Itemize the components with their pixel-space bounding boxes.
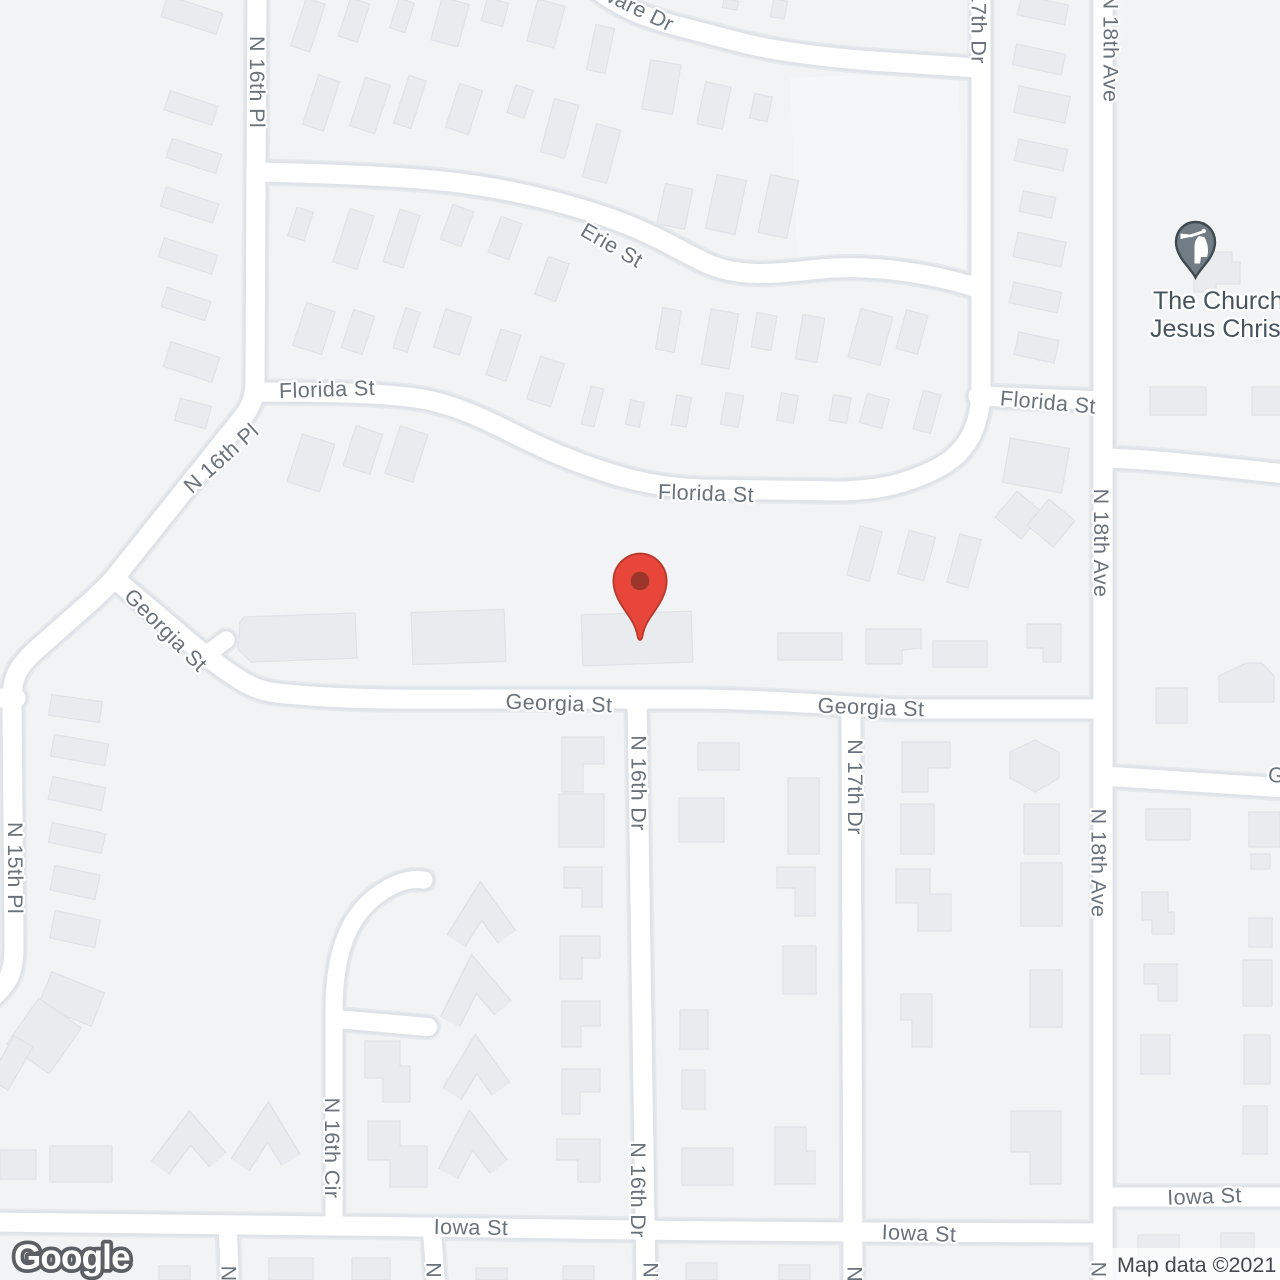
svg-text:N 17th Dr: N 17th Dr xyxy=(842,1266,866,1280)
svg-text:Google: Google xyxy=(14,1238,130,1277)
svg-text:Map data ©2021: Map data ©2021 xyxy=(1117,1253,1276,1277)
svg-text:Iowa St: Iowa St xyxy=(881,1220,956,1247)
svg-text:N 17th Dr: N 17th Dr xyxy=(966,0,990,64)
svg-text:Florida St: Florida St xyxy=(658,480,755,507)
svg-text:N 17th Dr: N 17th Dr xyxy=(843,739,867,835)
svg-text:N 16th Pl: N 16th Pl xyxy=(245,36,269,128)
svg-text:N 16th Dr: N 16th Dr xyxy=(638,1262,662,1280)
svg-text:Iowa St: Iowa St xyxy=(434,1215,509,1240)
svg-text:N 18th Ave: N 18th Ave xyxy=(1089,489,1113,598)
svg-text:N 18th Ave: N 18th Ave xyxy=(1098,0,1122,102)
svg-text:Florida St: Florida St xyxy=(279,376,376,403)
svg-text:The Church of: The Church of xyxy=(1153,287,1280,315)
svg-text:N 15th Pl: N 15th Pl xyxy=(3,822,27,914)
svg-text:N 16th Dr: N 16th Dr xyxy=(421,1262,445,1280)
svg-text:N 16th Dr: N 16th Dr xyxy=(626,735,650,831)
svg-text:N 18th Ave: N 18th Ave xyxy=(1086,809,1110,918)
svg-text:Jesus Christ o: Jesus Christ o xyxy=(1150,315,1280,343)
svg-text:Georgia St: Georgia St xyxy=(505,690,613,718)
svg-text:N 16th Cir: N 16th Cir xyxy=(320,1098,344,1199)
svg-text:Georgia St: Georgia St xyxy=(817,694,925,722)
svg-text:N 16th Cir: N 16th Cir xyxy=(216,1266,240,1280)
svg-text:Iowa St: Iowa St xyxy=(1167,1183,1242,1210)
svg-text:N 16th Dr: N 16th Dr xyxy=(626,1142,650,1238)
